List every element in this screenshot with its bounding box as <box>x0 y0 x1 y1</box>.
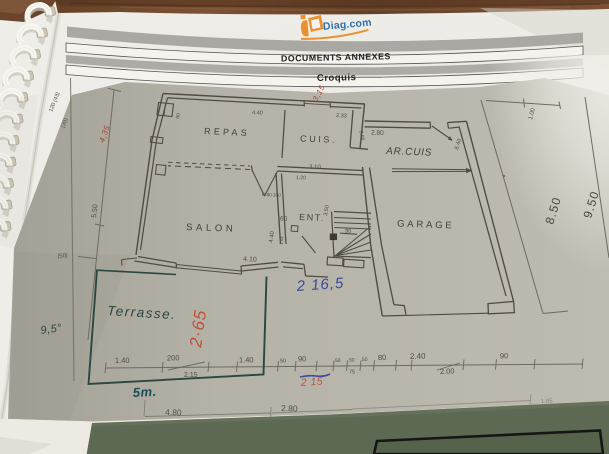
svg-text:Croquis: Croquis <box>317 72 357 84</box>
svg-text:2.33: 2.33 <box>336 113 347 120</box>
svg-text:2.80: 2.80 <box>281 403 298 414</box>
svg-text:4.40: 4.40 <box>252 110 263 117</box>
svg-text:3.10: 3.10 <box>309 165 322 171</box>
svg-text:90: 90 <box>345 229 351 235</box>
svg-text:90: 90 <box>298 354 306 363</box>
svg-text:SALON: SALON <box>186 222 237 235</box>
svg-text:50: 50 <box>335 358 341 364</box>
svg-text:2.80: 2.80 <box>371 130 384 137</box>
svg-text:2.40: 2.40 <box>410 351 426 361</box>
svg-text:2 15: 2 15 <box>299 375 323 389</box>
svg-text:1.40: 1.40 <box>115 356 130 365</box>
svg-text:5.50: 5.50 <box>91 204 99 218</box>
svg-text:50: 50 <box>349 357 355 363</box>
svg-text:GARAGE: GARAGE <box>397 219 455 232</box>
svg-text:|50|: |50| <box>58 253 69 260</box>
svg-text:REPAS: REPAS <box>204 126 250 138</box>
svg-text:2.00: 2.00 <box>440 366 455 376</box>
svg-text:5m.: 5m. <box>132 384 157 400</box>
svg-text:4.10: 4.10 <box>243 256 257 264</box>
svg-text:60: 60 <box>280 216 288 223</box>
svg-text:75: 75 <box>349 369 355 375</box>
svg-text:D.80 200: D.80 200 <box>262 192 281 198</box>
svg-text:ENT.: ENT. <box>299 212 325 223</box>
svg-text:1.40: 1.40 <box>239 355 254 364</box>
svg-text:80: 80 <box>378 353 386 362</box>
svg-text:CUIS.: CUIS. <box>300 134 337 145</box>
svg-text:50: 50 <box>280 358 286 364</box>
svg-text:2 16,5: 2 16,5 <box>295 275 345 295</box>
svg-text:AR.CUIS: AR.CUIS <box>385 146 433 159</box>
svg-text:200: 200 <box>167 353 180 362</box>
svg-text:90: 90 <box>500 351 509 360</box>
svg-text:50: 50 <box>362 357 368 363</box>
svg-text:1.20: 1.20 <box>296 175 306 181</box>
svg-text:4.80: 4.80 <box>165 407 182 418</box>
